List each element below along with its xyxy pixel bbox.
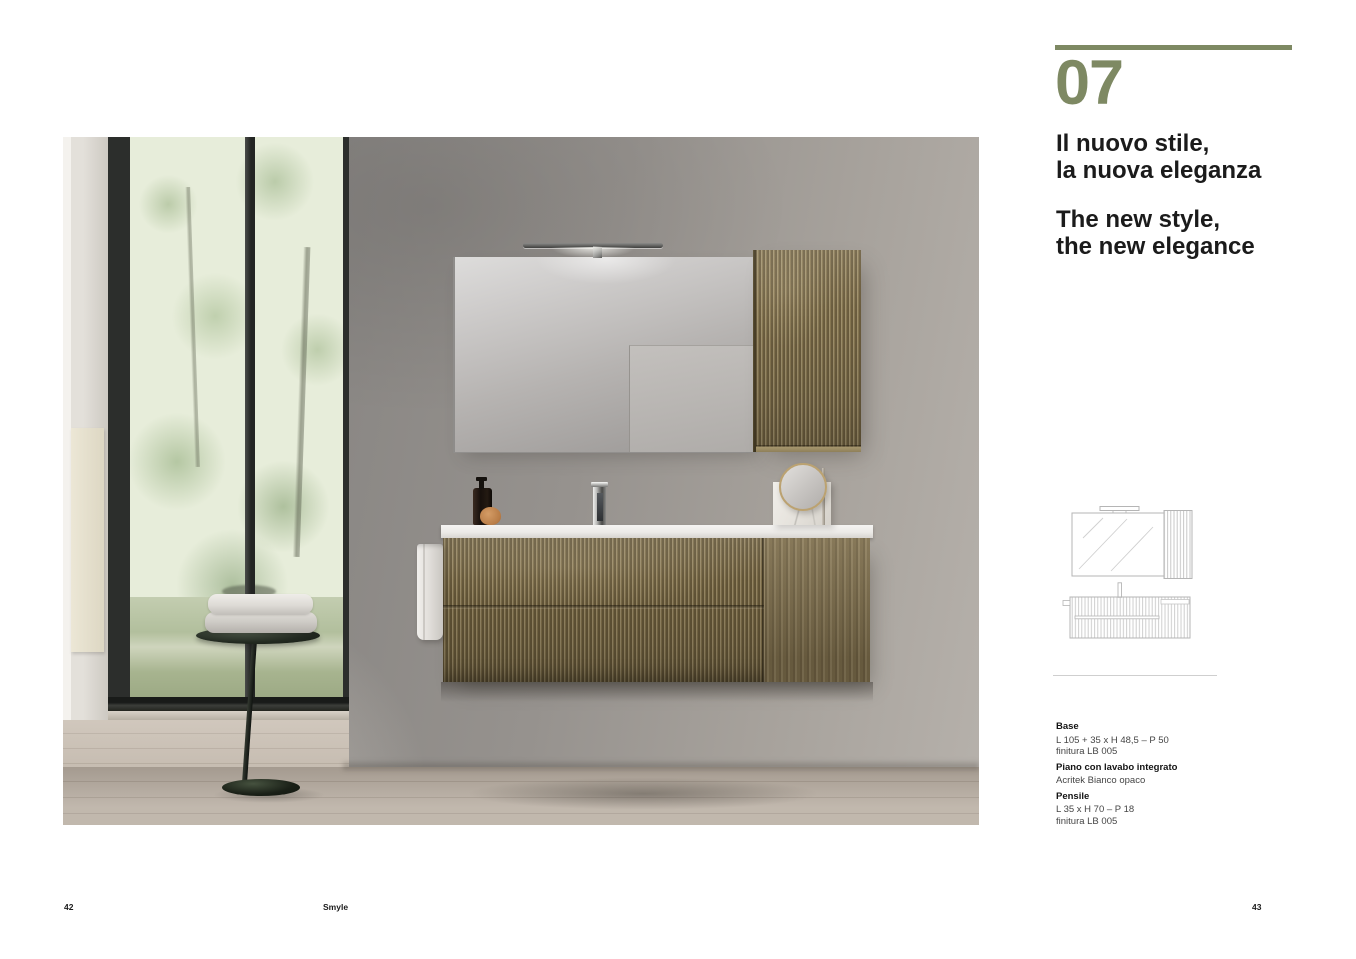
page-number-left: 42 (64, 902, 73, 912)
spec-group-wall-unit: Pensile L 35 x H 70 – P 18 finitura LB 0… (1056, 791, 1266, 828)
headline-english-line2: the new elegance (1056, 233, 1255, 260)
page-number-right: 43 (1252, 902, 1261, 912)
wall-floor-shadow (343, 760, 979, 771)
spec-line: L 35 x H 70 – P 18 (1056, 804, 1266, 816)
washbasin-countertop (441, 525, 873, 538)
section-number: 07 (1055, 52, 1123, 115)
brand-name: Smyle (323, 902, 348, 912)
panel-divider (1053, 675, 1217, 676)
lamp-glow (533, 247, 653, 263)
spec-label: Piano con lavabo integrato (1056, 762, 1266, 774)
vanity-floor-shadow (393, 773, 893, 819)
faucet-spout (591, 482, 608, 487)
sponge (480, 507, 501, 525)
headline-english-line1: The new style, (1056, 206, 1255, 233)
spec-group-top: Piano con lavabo integrato Acritek Bianc… (1056, 762, 1266, 787)
vanity-side-door (765, 538, 870, 682)
faucet-detail (597, 493, 603, 521)
spec-line: finitura LB 005 (1056, 816, 1266, 828)
side-table-base (222, 779, 300, 796)
spec-line: L 105 + 35 x H 48,5 – P 50 (1056, 735, 1266, 747)
headline-italian-line2: la nuova eleganza (1056, 157, 1261, 184)
folded-towel (205, 612, 317, 633)
window-track (108, 697, 349, 711)
spec-line: Acritek Bianco opaco (1056, 775, 1266, 787)
tree-trunk (185, 187, 200, 467)
drawer-groove (443, 605, 764, 609)
wall-mirror (453, 257, 757, 453)
spec-label: Base (1056, 721, 1266, 733)
catalog-photo (63, 137, 979, 825)
spec-group-base: Base L 105 + 35 x H 48,5 – P 50 finitura… (1056, 721, 1266, 758)
vanity-base-unit (443, 538, 870, 682)
spec-line: finitura LB 005 (1056, 746, 1266, 758)
vanity-wall-shadow (441, 682, 873, 702)
product-specs: Base L 105 + 35 x H 48,5 – P 50 finitura… (1056, 721, 1266, 831)
spec-label: Pensile (1056, 791, 1266, 803)
window-sill (108, 711, 349, 720)
towel-fold (423, 544, 425, 640)
headline-italian: Il nuovo stile, la nuova eleganza (1056, 130, 1261, 184)
wall-cabinet-bottom-panel (756, 445, 861, 452)
wall-panel (71, 428, 104, 652)
hand-towel (417, 544, 443, 640)
folded-towel (208, 594, 313, 614)
headline-english: The new style, the new elegance (1056, 206, 1255, 260)
soap-nozzle (476, 477, 487, 481)
wall-cabinet (753, 250, 861, 452)
makeup-mirror (779, 463, 827, 511)
mirror-reflection-corner (629, 345, 757, 452)
tech-drawing-mirror-and-cabinet (1071, 504, 1193, 582)
tech-drawing-vanity-front (1062, 582, 1194, 646)
headline-italian-line1: Il nuovo stile, (1056, 130, 1261, 157)
tree-trunk (293, 247, 311, 557)
